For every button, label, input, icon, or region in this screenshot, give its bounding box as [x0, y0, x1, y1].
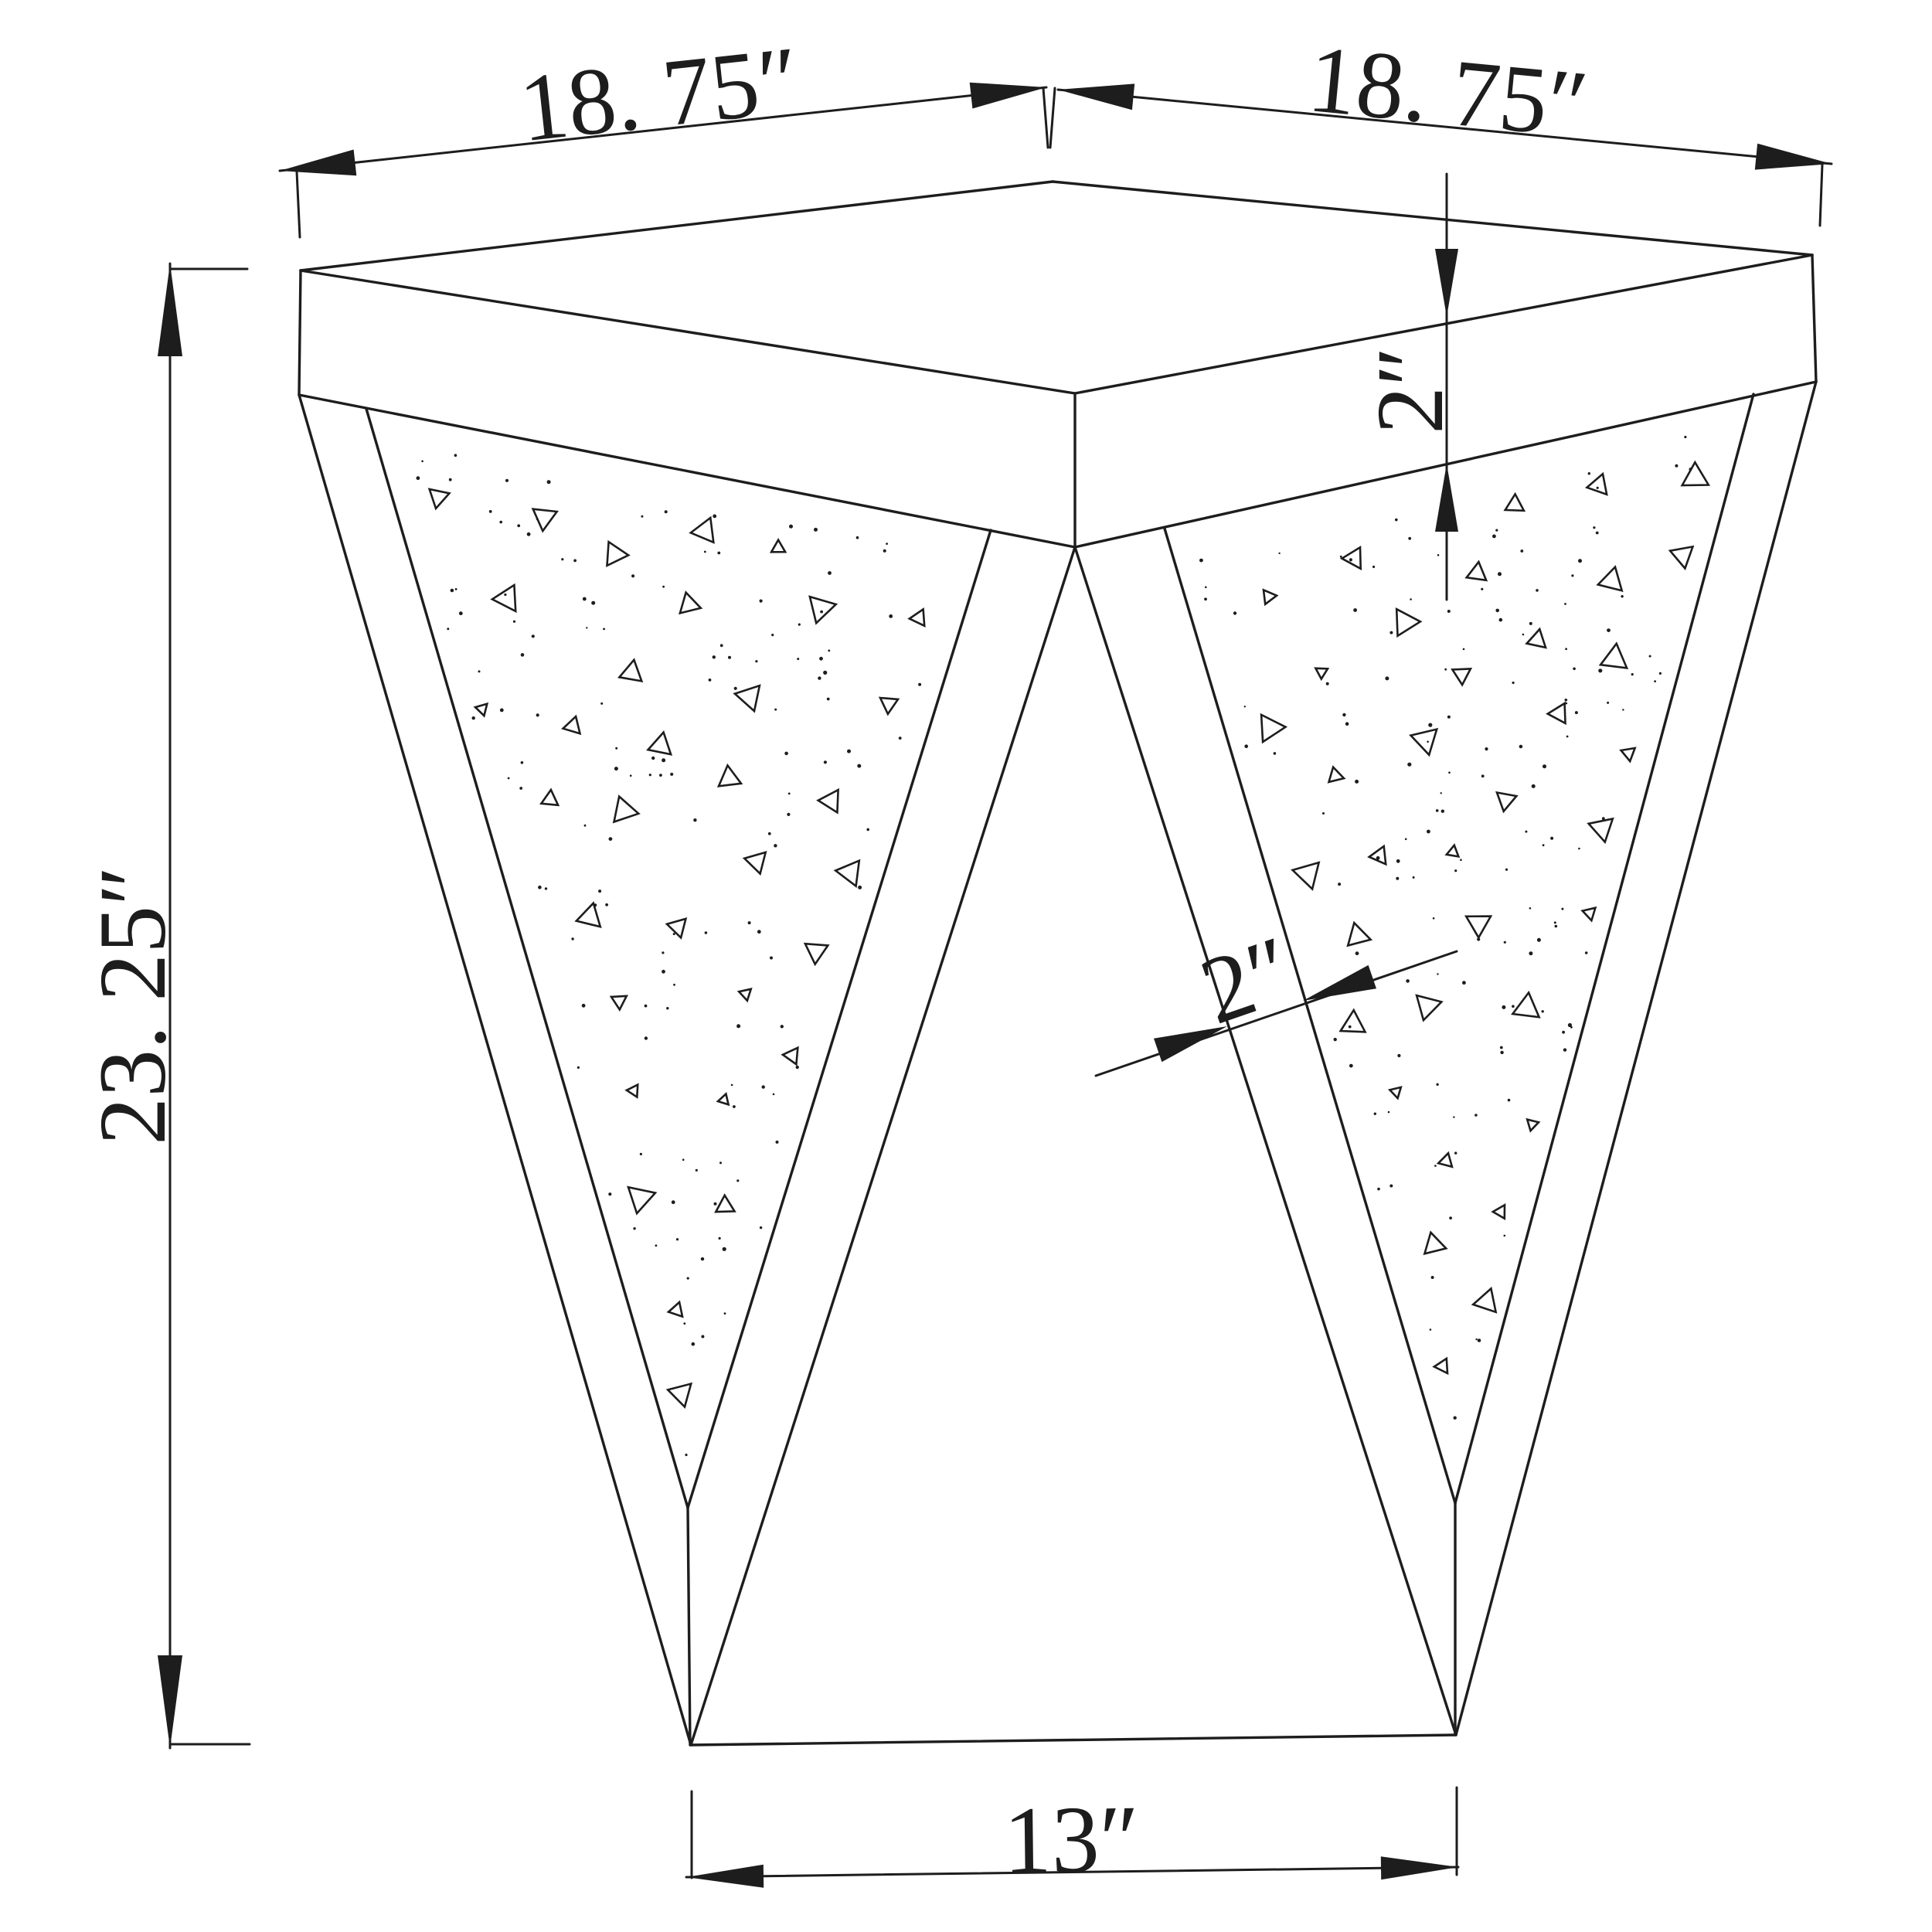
svg-text:13″: 13″ [1003, 1786, 1140, 1893]
svg-text:23. 25″: 23. 25″ [80, 866, 185, 1145]
svg-text:2″: 2″ [1357, 346, 1463, 434]
